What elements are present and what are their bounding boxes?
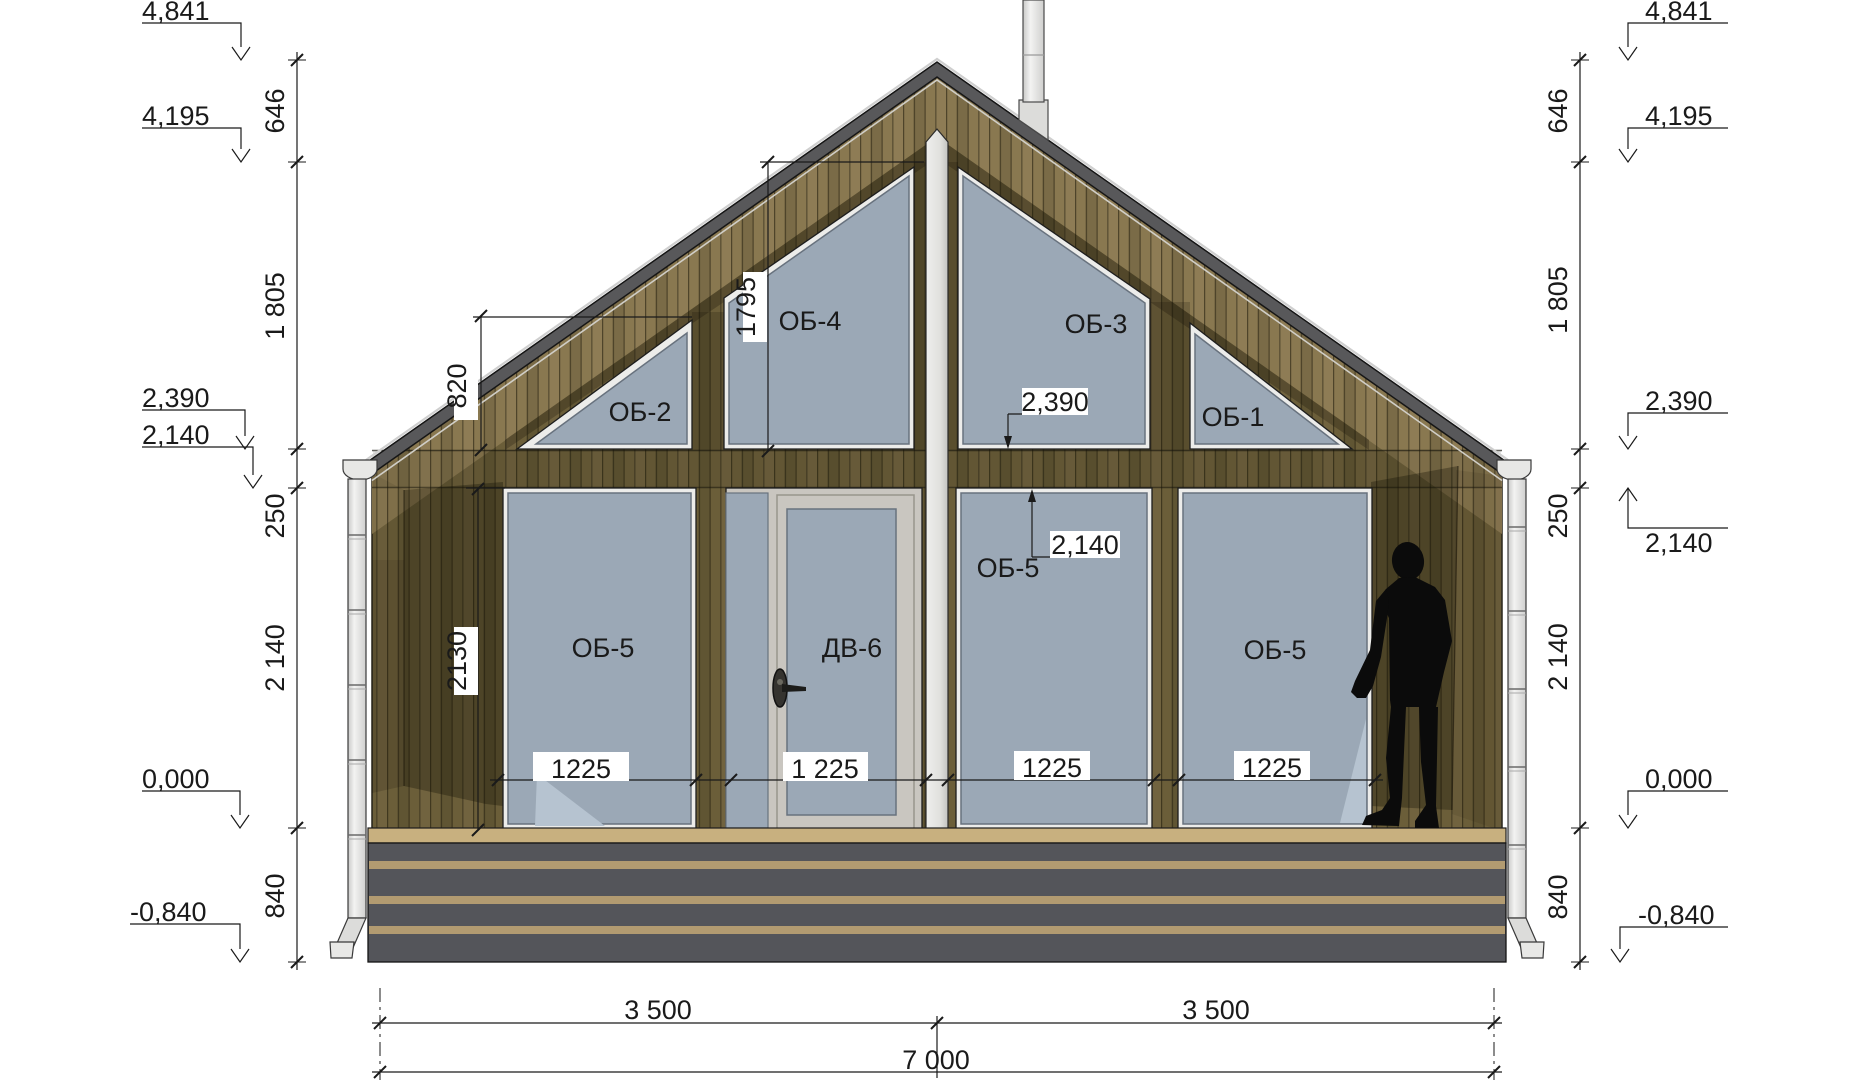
svg-text:1 805: 1 805 xyxy=(260,272,290,340)
svg-text:4,195: 4,195 xyxy=(1645,101,1713,131)
svg-text:ОБ-4: ОБ-4 xyxy=(779,306,842,336)
svg-text:1795: 1795 xyxy=(731,277,761,337)
svg-text:2,140: 2,140 xyxy=(1645,528,1713,558)
svg-text:ОБ-1: ОБ-1 xyxy=(1202,402,1265,432)
svg-text:4,841: 4,841 xyxy=(1645,0,1713,26)
svg-text:4,195: 4,195 xyxy=(142,101,210,131)
svg-text:1225: 1225 xyxy=(551,754,611,784)
svg-text:ОБ-2: ОБ-2 xyxy=(609,397,672,427)
svg-text:1 225: 1 225 xyxy=(791,754,859,784)
svg-text:3 500: 3 500 xyxy=(1182,995,1250,1025)
svg-text:2,390: 2,390 xyxy=(142,383,210,413)
svg-text:820: 820 xyxy=(442,363,472,408)
svg-text:0,000: 0,000 xyxy=(1645,764,1713,794)
svg-text:ОБ-5: ОБ-5 xyxy=(977,553,1040,583)
svg-text:4,841: 4,841 xyxy=(142,0,210,26)
svg-text:2,390: 2,390 xyxy=(1021,387,1089,417)
svg-text:2,140: 2,140 xyxy=(142,420,210,450)
svg-text:646: 646 xyxy=(1543,88,1573,133)
svg-text:-0,840: -0,840 xyxy=(130,897,207,927)
svg-text:0,000: 0,000 xyxy=(142,764,210,794)
svg-text:2130: 2130 xyxy=(442,631,472,691)
svg-text:ОБ-5: ОБ-5 xyxy=(1244,635,1307,665)
svg-text:250: 250 xyxy=(260,493,290,538)
svg-text:2 140: 2 140 xyxy=(260,624,290,692)
svg-text:646: 646 xyxy=(260,88,290,133)
svg-text:ОБ-5: ОБ-5 xyxy=(572,633,635,663)
svg-text:ДВ-6: ДВ-6 xyxy=(822,633,882,663)
svg-text:840: 840 xyxy=(260,873,290,918)
svg-text:2,390: 2,390 xyxy=(1645,386,1713,416)
svg-text:1225: 1225 xyxy=(1022,753,1082,783)
svg-text:2,140: 2,140 xyxy=(1051,530,1119,560)
svg-text:840: 840 xyxy=(1543,874,1573,919)
svg-text:1 805: 1 805 xyxy=(1543,266,1573,334)
svg-text:ОБ-3: ОБ-3 xyxy=(1065,309,1128,339)
svg-text:-0,840: -0,840 xyxy=(1638,900,1715,930)
svg-text:7 000: 7 000 xyxy=(902,1045,970,1075)
svg-text:3 500: 3 500 xyxy=(624,995,692,1025)
svg-text:1225: 1225 xyxy=(1242,753,1302,783)
svg-text:2 140: 2 140 xyxy=(1543,623,1573,691)
svg-text:250: 250 xyxy=(1543,493,1573,538)
